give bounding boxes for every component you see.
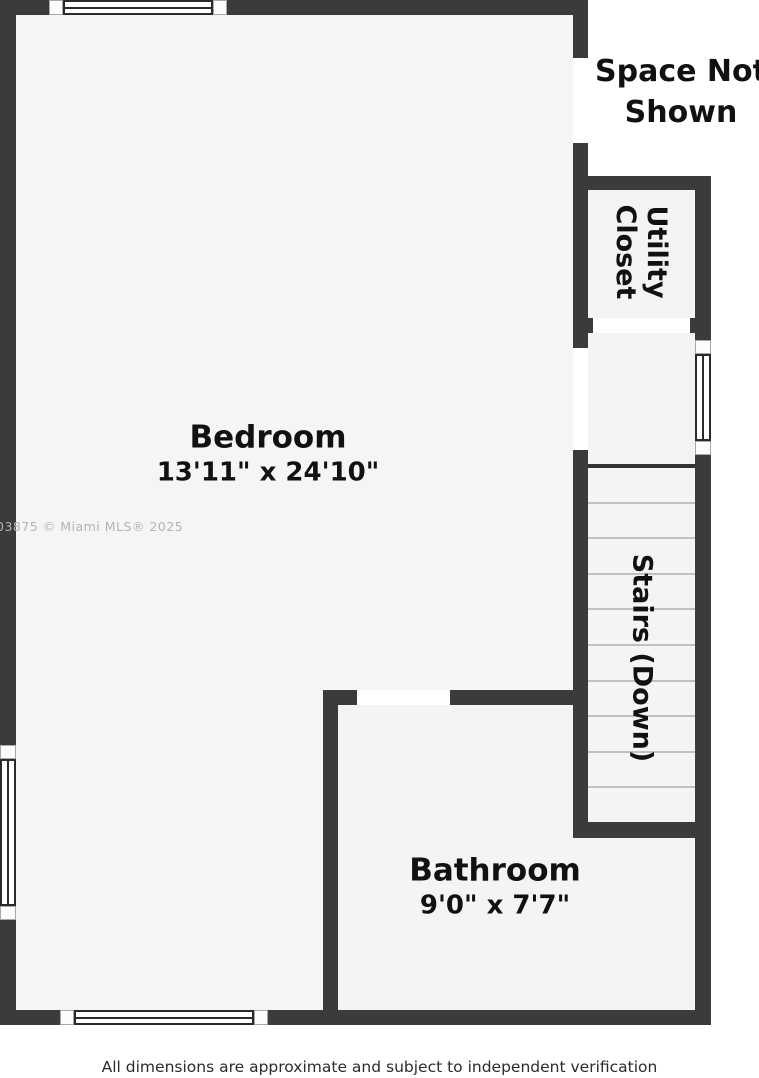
bedroom-name: Bedroom	[108, 420, 428, 456]
bathroom-label: Bathroom 9'0" x 7'7"	[345, 853, 645, 922]
utility-closet-top-wall	[573, 176, 711, 190]
left-window-icon	[0, 745, 16, 920]
stairs-label: Stairs (Down)	[626, 554, 657, 762]
utility-closet-door-opening	[593, 318, 690, 333]
window-cap	[695, 340, 711, 354]
space-not-shown-label: Space Not Shown	[591, 52, 759, 133]
bathroom-door-opening	[357, 690, 450, 705]
bottom-window-icon	[60, 1010, 268, 1025]
bathroom-name: Bathroom	[345, 853, 645, 889]
mls-watermark: 03875 © Miami MLS® 2025	[0, 519, 183, 534]
window-cap	[0, 906, 16, 920]
window-pane	[695, 354, 711, 441]
window-pane-line	[7, 761, 9, 904]
bedroom-landing-opening	[573, 348, 588, 450]
bedroom-dimensions: 13'11" x 24'10"	[108, 456, 428, 490]
window-cap	[254, 1010, 268, 1025]
floor-plan: Space Not Shown Utility Closet Stairs (D…	[0, 0, 759, 1078]
bedroom-label: Bedroom 13'11" x 24'10"	[108, 420, 428, 489]
disclaimer-text: All dimensions are approximate and subje…	[0, 1058, 759, 1076]
window-cap	[60, 1010, 74, 1025]
window-cap	[0, 745, 16, 759]
window-cap	[695, 441, 711, 455]
stair-tread	[588, 468, 695, 504]
stair-tread	[588, 504, 695, 540]
top-window-icon	[49, 0, 227, 15]
window-cap	[213, 0, 227, 15]
stair-tread	[588, 788, 695, 822]
window-pane	[63, 0, 213, 15]
window-pane-line	[65, 7, 211, 9]
window-pane	[74, 1010, 254, 1025]
bathroom-dimensions: 9'0" x 7'7"	[345, 889, 645, 923]
stair-landing-floor	[588, 333, 695, 464]
right-exterior-wall	[695, 176, 711, 1025]
stairwell-bottom-wall	[573, 822, 711, 838]
window-pane-line	[702, 356, 704, 439]
bathroom-left-wall	[323, 690, 338, 1010]
bedroom-upper-right-opening	[573, 58, 588, 143]
right-window-icon	[695, 340, 711, 455]
window-cap	[49, 0, 63, 15]
window-pane	[0, 759, 16, 906]
window-pane-line	[76, 1017, 252, 1019]
utility-closet-label: Utility Closet	[610, 196, 672, 308]
